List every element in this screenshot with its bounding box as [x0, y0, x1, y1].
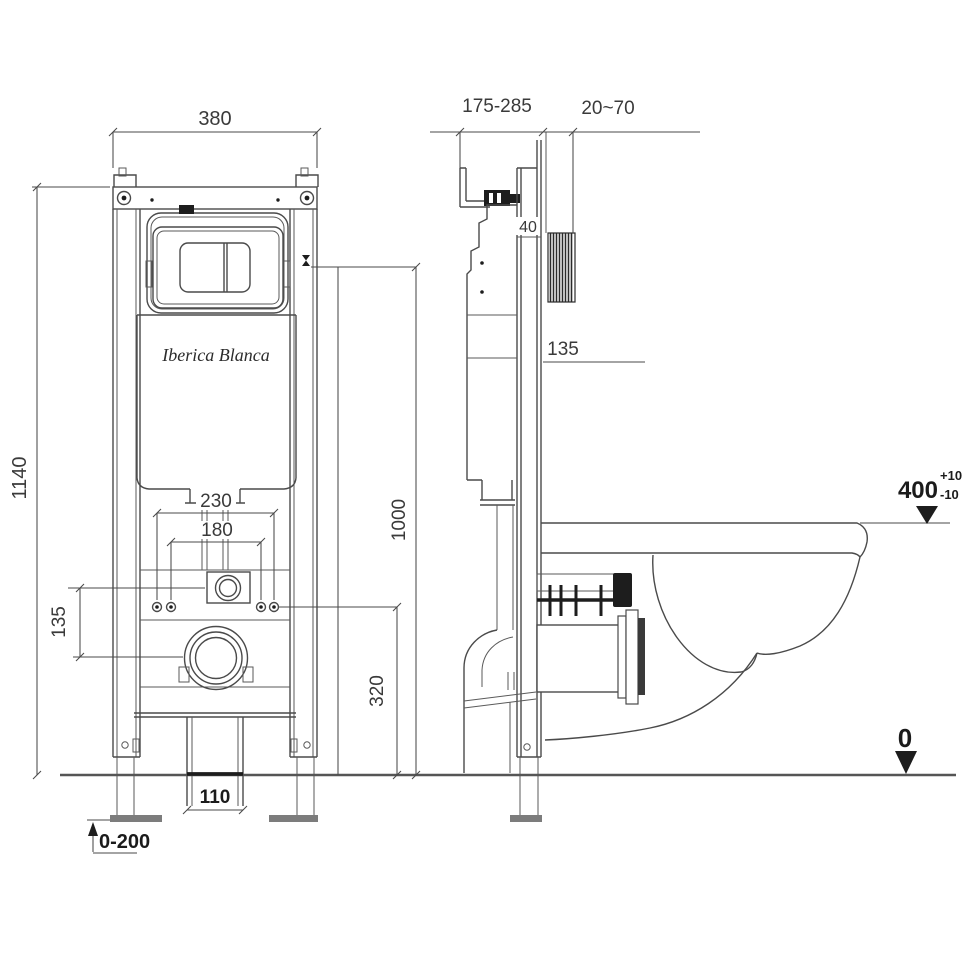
level-triangle-icon — [916, 506, 938, 524]
dim-inlet-drain-offset-label: 135 — [49, 606, 70, 638]
dim-actuation-height: 1000 — [302, 255, 420, 779]
cistern-profile — [467, 205, 517, 630]
dim-feet-range: 0-200 — [87, 820, 150, 853]
plate-clip-icon — [179, 205, 194, 214]
dim-actuation-height-label: 1000 — [389, 499, 410, 541]
flush-plate — [146, 205, 290, 313]
wall-hatch — [548, 233, 575, 302]
dim-front-height: 1140 — [9, 183, 110, 779]
cistern-tank: Iberica Blanca — [137, 315, 296, 503]
brand-logo: Iberica Blanca — [161, 345, 269, 365]
frame-crossbars — [134, 570, 296, 717]
dim-floor-level: 0 — [895, 723, 917, 774]
dim-bolt-outer: 230 — [153, 491, 278, 600]
dim-feet-range-label: 0-200 — [99, 831, 150, 853]
up-arrow-icon — [88, 822, 98, 836]
frame-top-band — [113, 187, 317, 209]
dim-bolt-outer-label: 230 — [200, 491, 232, 512]
foot-plate — [110, 815, 162, 822]
dim-front-width: 380 — [109, 108, 321, 168]
foot-plate — [269, 815, 318, 822]
dim-wall-finish-label: 20~70 — [581, 98, 634, 119]
connector-gasket — [638, 618, 645, 695]
dim-frame-depth-label: 40 — [519, 219, 537, 236]
technical-drawing-page: Iberica Blanca — [0, 0, 970, 970]
dim-bolt-inner-label: 180 — [201, 520, 233, 541]
dim-install-depth: 175-285 20~70 — [430, 96, 700, 233]
dim-rim-height-label: 400 — [898, 477, 938, 504]
fixing-bolts — [153, 603, 279, 612]
dim-inlet-drain-offset: 135 — [49, 584, 205, 661]
dim-supply-offset-label: 135 — [547, 339, 579, 360]
dim-rim-tol-minus: -10 — [940, 487, 959, 502]
drain-elbow — [464, 630, 536, 773]
dim-supply-offset: 135 — [543, 339, 645, 362]
dim-drain-height: 320 — [278, 603, 401, 779]
water-inlet — [207, 572, 250, 603]
dim-install-depth-label: 175-285 — [462, 96, 532, 117]
flush-buttons — [180, 243, 250, 292]
dim-floor-level-label: 0 — [898, 723, 912, 753]
dim-outlet-width: 110 — [183, 787, 247, 814]
dim-front-width-label: 380 — [198, 108, 231, 130]
mounting-rod — [537, 573, 632, 616]
wall-bracket — [460, 168, 520, 207]
dim-outlet-width-label: 110 — [200, 787, 231, 808]
dim-rim-height: 400 +10 -10 — [860, 468, 962, 524]
level-mark-icon — [302, 255, 310, 266]
drain-flange — [179, 627, 253, 690]
dim-frame-depth: 40 — [515, 217, 540, 236]
wc-frame-installation-drawing: Iberica Blanca — [0, 0, 970, 970]
dim-front-height-label: 1140 — [9, 456, 31, 499]
dim-rim-tol-plus: +10 — [940, 468, 962, 483]
level-triangle-icon — [895, 751, 917, 774]
foot-plate — [510, 815, 542, 822]
top-brackets — [114, 168, 318, 187]
frame-rails — [113, 209, 317, 757]
drain-connector — [537, 610, 645, 704]
dim-drain-height-label: 320 — [367, 675, 388, 707]
